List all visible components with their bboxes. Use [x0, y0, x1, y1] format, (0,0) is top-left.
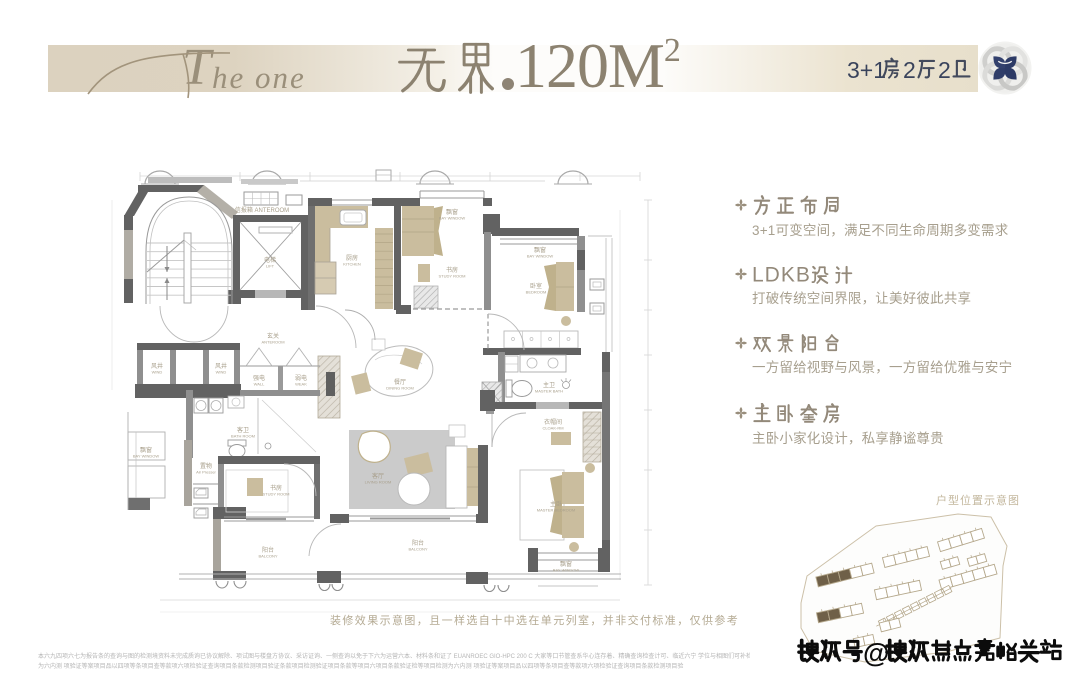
svg-text:BEDROOM: BEDROOM [526, 290, 547, 295]
svg-text:Air Presser: Air Presser [196, 470, 216, 475]
svg-text:BAY WINDOW: BAY WINDOW [439, 216, 466, 221]
svg-text:WALL: WALL [254, 382, 266, 387]
svg-text:DINING ROOM: DINING ROOM [386, 386, 414, 391]
svg-text:LIFT: LIFT [266, 264, 275, 269]
svg-text:@: @ [863, 638, 889, 668]
svg-text:MASTER BATH: MASTER BATH [535, 389, 563, 394]
svg-text:BAY WINDOW: BAY WINDOW [133, 454, 160, 459]
svg-text:BAY WINDOW: BAY WINDOW [553, 568, 580, 573]
svg-text:WEAK: WEAK [295, 382, 307, 387]
svg-text:WIND: WIND [152, 370, 163, 375]
svg-text:STUDY ROOM: STUDY ROOM [438, 274, 465, 279]
svg-text:3+1: 3+1 [847, 57, 886, 83]
svg-text:LDKB: LDKB [752, 264, 811, 286]
svg-text:MASTER BEDROOM: MASTER BEDROOM [537, 508, 575, 513]
svg-text:信报箱 ANTEROOM: 信报箱 ANTEROOM [235, 206, 289, 214]
svg-text:2: 2 [938, 57, 951, 83]
svg-text:KITCHEN: KITCHEN [343, 262, 361, 267]
svg-text:BATH ROOM: BATH ROOM [231, 434, 255, 439]
svg-text:BALCONY: BALCONY [258, 554, 277, 559]
svg-text:LIVING ROOM: LIVING ROOM [365, 480, 392, 485]
svg-text:CLOAK-RM: CLOAK-RM [542, 426, 563, 431]
svg-text:BALCONY: BALCONY [408, 547, 427, 552]
svg-text:BAY WINDOW: BAY WINDOW [527, 254, 554, 259]
svg-text:STUDY ROOM: STUDY ROOM [262, 492, 289, 497]
svg-text:ANTEROOM: ANTEROOM [261, 340, 284, 345]
svg-text:2: 2 [903, 57, 916, 83]
svg-text:WIND: WIND [216, 370, 227, 375]
